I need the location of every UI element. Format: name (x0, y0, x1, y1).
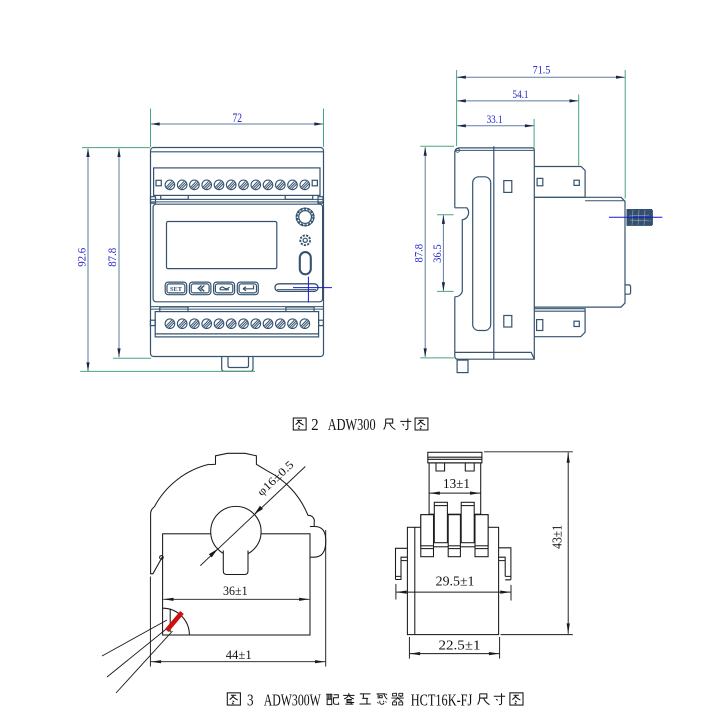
svg-text:29.5±1: 29.5±1 (436, 574, 475, 589)
svg-text:72: 72 (232, 110, 242, 125)
svg-text:92.6: 92.6 (74, 248, 88, 267)
svg-text:13±1: 13±1 (443, 476, 470, 491)
svg-text:3: 3 (247, 690, 254, 709)
svg-text:φ16±0.5: φ16±0.5 (255, 459, 296, 499)
svg-text:ADW300: ADW300 (328, 415, 376, 434)
svg-text:ADW300W: ADW300W (264, 690, 322, 709)
svg-text:87.8: 87.8 (412, 244, 426, 263)
svg-text:22.5±1: 22.5±1 (439, 637, 481, 652)
svg-text:87.8: 87.8 (105, 248, 119, 267)
svg-text:36±1: 36±1 (223, 583, 248, 598)
svg-text:33.1: 33.1 (487, 112, 503, 126)
svg-text:SET: SET (170, 287, 182, 293)
svg-text:2: 2 (311, 415, 319, 434)
svg-text:71.5: 71.5 (533, 63, 551, 77)
svg-text:43±1: 43±1 (550, 525, 565, 549)
svg-text:44±1: 44±1 (226, 647, 252, 662)
svg-text:HCT16K-FJ: HCT16K-FJ (411, 690, 473, 709)
svg-text:54.1: 54.1 (513, 87, 529, 101)
svg-text:36.5: 36.5 (430, 244, 444, 263)
